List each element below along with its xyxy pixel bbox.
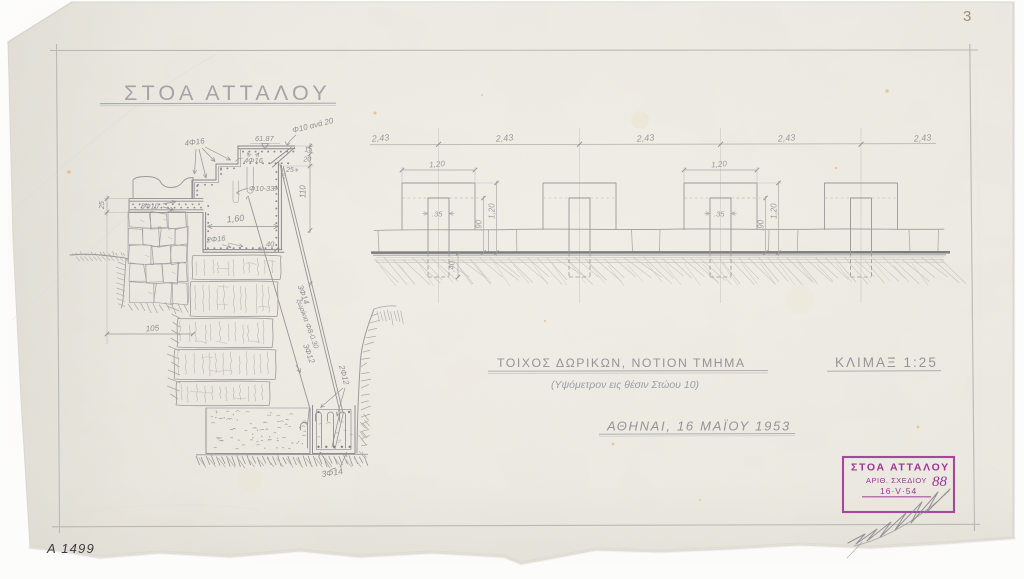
svg-text:88: 88 — [932, 474, 948, 490]
svg-text:16·V·54: 16·V·54 — [880, 486, 917, 496]
svg-text:ΤΟΙΧΟΣ ΔΩΡΙΚΩΝ, ΝΟΤΙΟΝ ΤΜΗΜ: ΤΟΙΧΟΣ ΔΩΡΙΚΩΝ, ΝΟΤΙΟΝ ΤΜΗΜΑ — [497, 356, 746, 370]
svg-text:61.87: 61.87 — [255, 134, 275, 143]
svg-text:.35: .35 — [432, 209, 443, 218]
svg-text:ξ: ξ — [283, 174, 286, 180]
svg-text:.90: .90 — [757, 219, 766, 231]
svg-text:ΣΤΟΑ ΑΤΤΑΛΟΥ: ΣΤΟΑ ΑΤΤΑΛΟΥ — [124, 81, 331, 105]
svg-text:15: 15 — [305, 147, 313, 154]
svg-text:1,20: 1,20 — [429, 159, 446, 169]
svg-text:40: 40 — [266, 240, 275, 249]
svg-text:A 1499: A 1499 — [46, 541, 95, 556]
svg-text:ΣΤΟΑ ΑΤΤΑΛΟΥ: ΣΤΟΑ ΑΤΤΑΛΟΥ — [851, 462, 950, 474]
svg-text:25: 25 — [99, 201, 106, 210]
svg-text:8Φ10: 8Φ10 — [141, 204, 159, 211]
svg-text:.35: .35 — [714, 209, 725, 218]
svg-text:2,43: 2,43 — [370, 132, 389, 144]
svg-text:3: 3 — [963, 8, 971, 25]
svg-text:105: 105 — [145, 323, 160, 333]
svg-text:1,20: 1,20 — [711, 159, 728, 169]
svg-text:1,20: 1,20 — [488, 203, 497, 219]
svg-text:ΑΡΙΘ. ΣΧΕΔΙΟΥ: ΑΡΙΘ. ΣΧΕΔΙΟΥ — [866, 476, 927, 485]
svg-text:1,60: 1,60 — [226, 213, 244, 225]
svg-text:.40: .40 — [448, 260, 457, 272]
svg-text:Φ10-33: Φ10-33 — [249, 184, 275, 193]
svg-text:ΚΛΙΜΑΞ 1:25: ΚΛΙΜΑΞ 1:25 — [835, 355, 938, 370]
svg-text:2,43: 2,43 — [635, 132, 654, 144]
svg-text:ΑΘΗΝΑΙ, 16 ΜΑΪΟΥ 1953: ΑΘΗΝΑΙ, 16 ΜΑΪΟΥ 1953 — [606, 419, 791, 434]
svg-text:1,20: 1,20 — [770, 203, 779, 219]
svg-text:2,43: 2,43 — [776, 132, 795, 144]
svg-text:.90: .90 — [475, 219, 484, 231]
svg-text:25: 25 — [285, 167, 294, 174]
svg-text:110: 110 — [299, 185, 308, 198]
svg-text:(Υψόμετρον εις θέσιν Στώου 10): (Υψόμετρον εις θέσιν Στώου 10) — [551, 379, 699, 391]
svg-text:2,43: 2,43 — [912, 132, 931, 144]
svg-text:2,43: 2,43 — [494, 132, 513, 144]
svg-text:20: 20 — [303, 157, 312, 164]
svg-text:4Φ16: 4Φ16 — [244, 156, 264, 165]
